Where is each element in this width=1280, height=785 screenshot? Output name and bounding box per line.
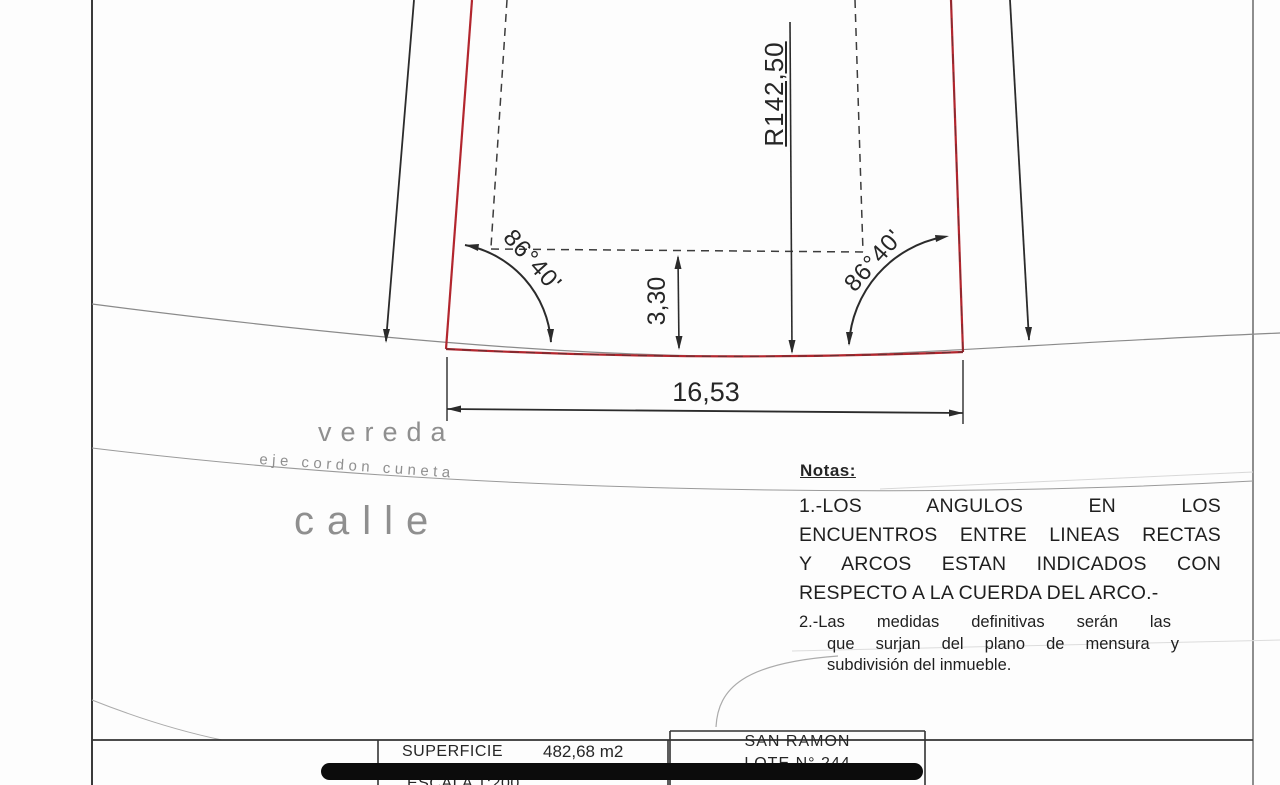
radius-line <box>790 22 792 352</box>
frontage-dimension-label: 16,53 <box>626 377 786 408</box>
radius-dimension-label: R142,50 <box>761 24 787 164</box>
note-2-line: 2.-Las medidas definitivas serán las <box>799 612 1171 634</box>
superficie-value: 482,68 m2 <box>543 742 623 762</box>
survey-plan-page: R142,50 3,30 16,53 86°40' 86°40' vereda … <box>0 0 1280 785</box>
note-1-line: ENCUENTROS ENTRE LINEAS RECTAS <box>799 521 1221 550</box>
note-2-line: que surjan del plano de mensura y <box>827 634 1179 656</box>
offset-dimension-line <box>678 257 679 348</box>
superficie-label: SUPERFICIE <box>402 743 503 761</box>
arrowhead <box>935 235 949 242</box>
note-2: 2.-Las medidas definitivas serán las que… <box>799 612 1179 677</box>
arrowhead <box>676 336 683 350</box>
arrowhead <box>383 329 390 343</box>
arrowhead <box>1025 327 1032 341</box>
note-1-line: 1.-LOS ANGULOS EN LOS <box>799 492 1221 521</box>
arrowhead <box>789 340 796 354</box>
arrowhead <box>547 329 554 343</box>
lot-boundary-front-arc <box>446 349 963 356</box>
curb-return-left <box>92 700 222 740</box>
lot-boundary-left <box>446 0 472 349</box>
arrowhead <box>846 332 853 346</box>
frontage-dimension-line <box>447 409 963 413</box>
note-1-line: RESPECTO A LA CUERDA DEL ARCO.- <box>799 579 1221 608</box>
arrowhead <box>447 406 461 413</box>
note-1-line: Y ARCOS ESTAN INDICADOS CON <box>799 550 1221 579</box>
arrowhead <box>465 244 479 251</box>
calle-label: calle <box>294 499 441 544</box>
side-dimension-line-right <box>1010 0 1029 340</box>
locality-name: SAN RAMON <box>670 733 925 751</box>
redaction-bar <box>321 763 923 780</box>
note-1: 1.-LOS ANGULOS EN LOS ENCUENTROS ENTRE L… <box>799 492 1221 608</box>
setback-dashed-right <box>855 0 863 252</box>
note-2-line: subdivisión del inmueble. <box>827 655 1179 677</box>
notes-title: Notas: <box>800 461 856 481</box>
street-edge-line <box>92 304 1280 356</box>
vereda-label: vereda <box>318 417 455 448</box>
lot-boundary-right <box>951 0 963 352</box>
side-dimension-line-left <box>386 0 414 341</box>
offset-dimension-label: 3,30 <box>644 256 670 346</box>
setback-dashed-bottom <box>491 249 863 252</box>
arrowhead <box>949 410 963 417</box>
scan-streak <box>880 472 1253 489</box>
arrowhead <box>675 255 682 269</box>
